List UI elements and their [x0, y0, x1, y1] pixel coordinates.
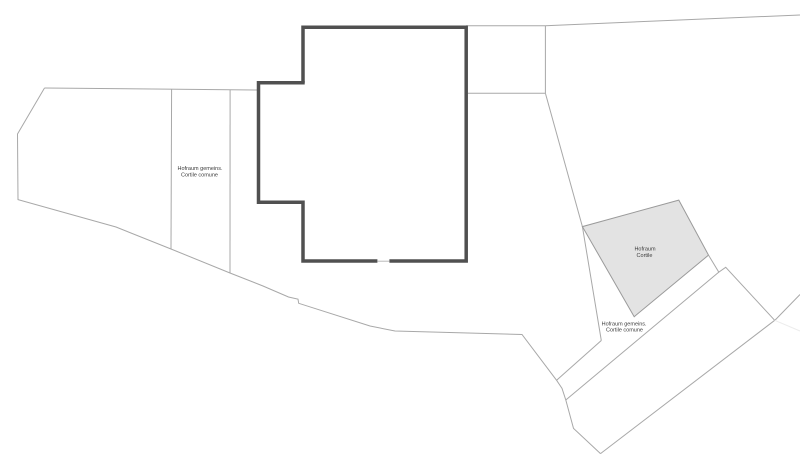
svg-text:Cortile comune: Cortile comune: [606, 328, 643, 334]
svg-text:Hofraum gemeins.: Hofraum gemeins.: [178, 166, 223, 172]
svg-text:Cortile: Cortile: [637, 253, 653, 259]
svg-text:Hofraum gemeins.: Hofraum gemeins.: [602, 321, 647, 327]
svg-text:Hofraum: Hofraum: [634, 247, 656, 253]
svg-text:Cortile comune: Cortile comune: [181, 173, 218, 179]
